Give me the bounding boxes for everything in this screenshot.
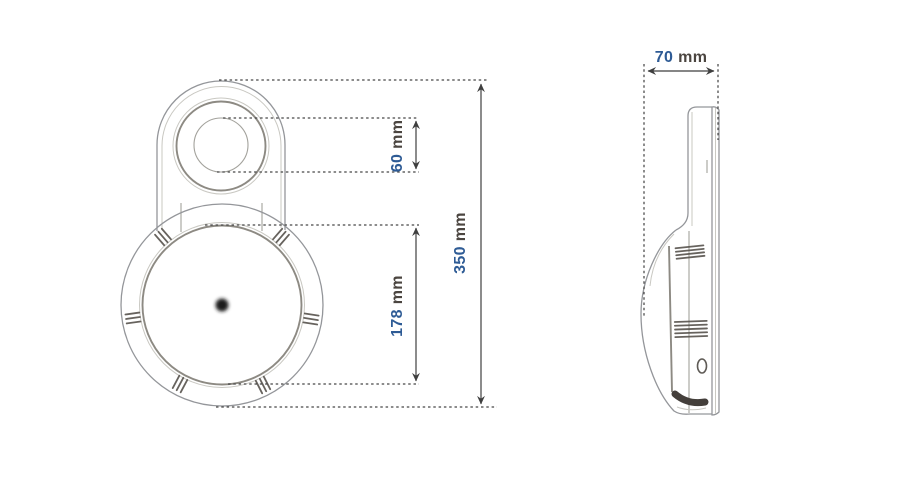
bracket-hole <box>194 118 248 172</box>
side-ridge-top <box>676 245 705 258</box>
bracket-ring <box>177 102 266 191</box>
dim-label-178: 178mm <box>389 275 406 337</box>
bracket-outline <box>157 81 285 231</box>
side-ridge-bottom-shadow <box>677 407 706 410</box>
side-dimensions: 70mm <box>644 49 718 316</box>
front-view <box>121 81 323 406</box>
center-dot <box>216 299 229 312</box>
side-view <box>641 107 719 415</box>
dim-label-350: 350mm <box>452 212 469 274</box>
dim-label-60: 60mm <box>389 120 406 172</box>
grip-mark-left <box>125 313 140 324</box>
dim-label-70: 70mm <box>655 49 707 66</box>
bracket-ring-outer <box>173 98 269 194</box>
side-ridge-middle <box>675 321 708 337</box>
cable-hole <box>698 359 707 373</box>
grip-mark-lower-left <box>173 376 188 393</box>
dome-front-rim <box>669 246 672 392</box>
pool-light-dimension-drawing: 60mm 178mm 350mm <box>0 0 920 487</box>
front-dimensions: 60mm 178mm 350mm <box>205 80 497 407</box>
side-ridge-bottom <box>675 394 705 403</box>
grip-mark-right <box>303 313 318 324</box>
technical-drawing-canvas: 60mm 178mm 350mm <box>0 0 920 487</box>
